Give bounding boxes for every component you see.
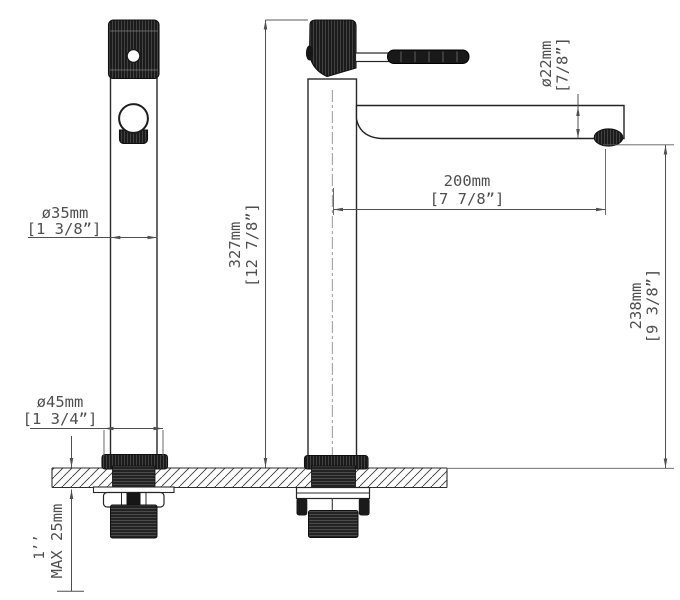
aerator-side: [594, 129, 623, 146]
arrow-down-icon: [664, 459, 668, 469]
countertop-hatch: [52, 468, 447, 488]
arrow-up-icon: [664, 145, 668, 155]
dim-deck-thickness: MAX 25mm 1’’: [32, 436, 84, 592]
bracket-leg-right: [359, 498, 370, 516]
deck-thickness-label: MAX 25mm: [48, 504, 66, 579]
dim-overall-height: 327mm [12 7/8”]: [226, 20, 308, 468]
knob-cap-dot: [127, 50, 140, 63]
spout-reach-imperial-label: [7 7/8”]: [430, 190, 505, 208]
washer-front: [94, 487, 175, 493]
arrow-right-icon: [154, 427, 164, 431]
spout-side: [357, 106, 625, 139]
overall-height-imperial-label: [12 7/8”]: [243, 203, 261, 287]
handle-knob-side: [310, 20, 357, 77]
front-view: [94, 20, 175, 538]
thread-size-label: 1’’: [32, 534, 48, 559]
arrow-left-icon: [104, 427, 114, 431]
spout-reach-metric-label: 200mm: [444, 172, 491, 190]
overall-height-metric-label: 327mm: [226, 222, 244, 269]
threaded-shank-upper-front: [113, 466, 156, 489]
spout-height-imperial-label: [9 3/8”]: [644, 269, 662, 344]
arrow-down-icon: [70, 458, 74, 468]
arrow-down-icon: [264, 458, 268, 468]
spout-end-front: [119, 104, 148, 133]
dim-spout-reach: 200mm [7 7/8”]: [334, 149, 606, 215]
base-diameter-imperial-label: [1 3/4”]: [23, 410, 98, 428]
spout-diameter-imperial-label: [7/8”]: [554, 37, 572, 93]
base-diameter-metric-label: ø45mm: [37, 393, 84, 411]
technical-drawing-canvas: ø35mm [1 3/8”] ø45mm [1 3/4”] 327mm [12 …: [0, 0, 680, 600]
spout-height-metric-label: 238mm: [627, 283, 645, 330]
lever-rod: [356, 53, 390, 62]
threaded-shank-lower-front: [111, 505, 158, 538]
arrow-up-icon: [264, 20, 268, 30]
bracket-leg-left: [297, 498, 308, 516]
spout-diameter-metric-label: ø22mm: [537, 41, 555, 88]
threaded-shank-lower-side: [309, 511, 359, 538]
faucet-dimension-drawing: ø35mm [1 3/8”] ø45mm [1 3/4”] 327mm [12 …: [0, 0, 680, 600]
knob-pivot-bump: [306, 46, 313, 61]
side-view: [297, 20, 625, 538]
arrow-up-icon: [70, 490, 74, 500]
countertop: [52, 468, 447, 488]
body-diameter-imperial-label: [1 3/8”]: [27, 220, 102, 238]
threaded-shank-upper-side: [312, 466, 356, 488]
arrow-right-icon: [596, 208, 606, 212]
